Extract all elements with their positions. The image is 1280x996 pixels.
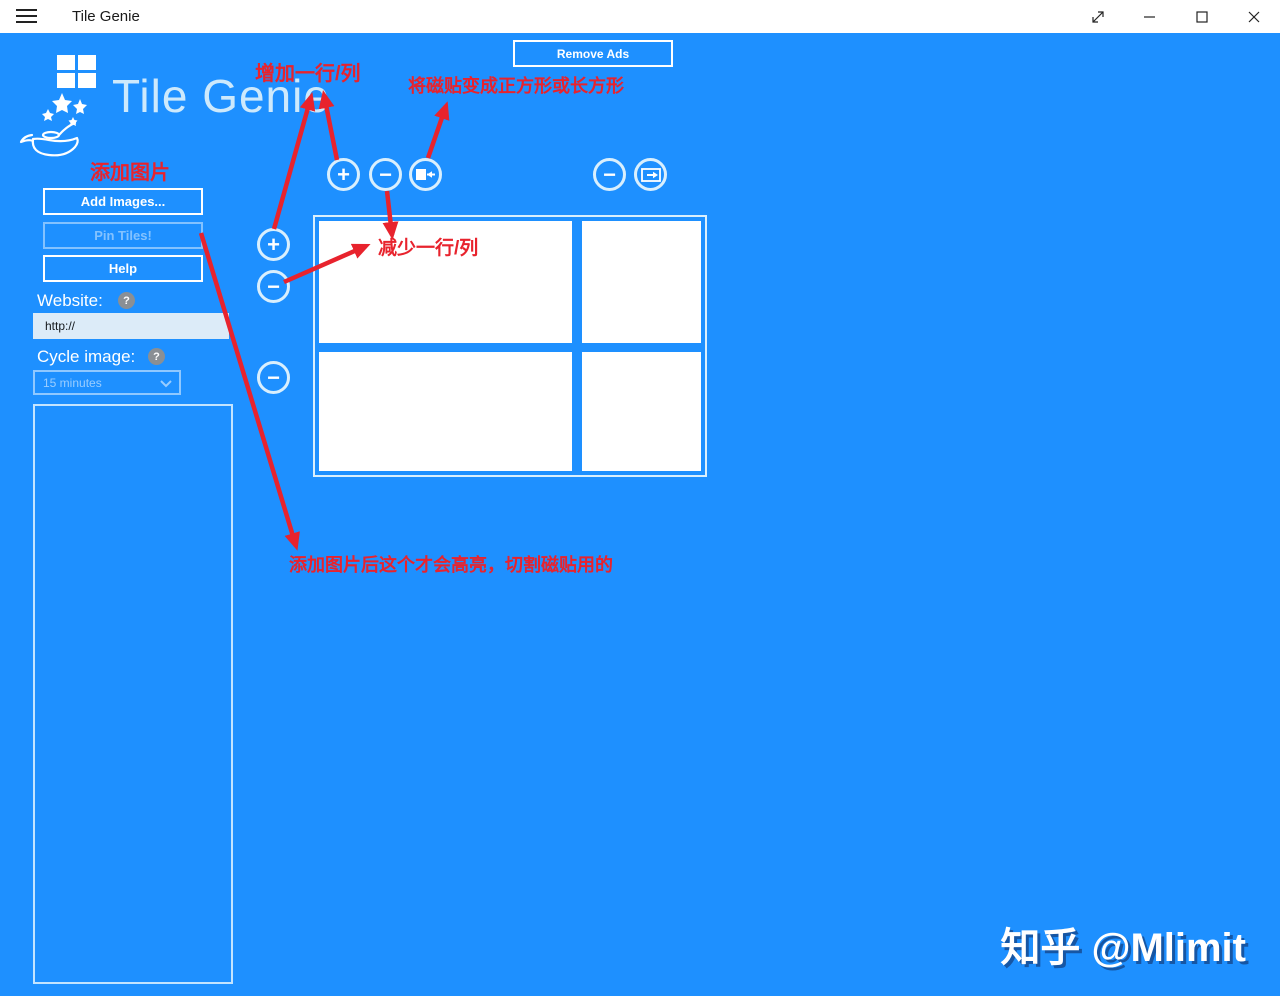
annotation-add-images: 添加图片 (90, 156, 170, 185)
remove-row-button[interactable]: − (257, 270, 290, 303)
add-column-button[interactable]: + (327, 158, 360, 191)
cycle-help-icon[interactable]: ? (148, 348, 165, 365)
website-label: Website: (37, 291, 103, 311)
image-list-panel (33, 404, 233, 984)
tile-preview-grid (313, 215, 707, 477)
maximize-icon[interactable] (1176, 0, 1228, 33)
cycle-image-label: Cycle image: (37, 347, 135, 367)
annotation-pin-note: 添加图片后这个才会高亮，切割磁贴用的 (289, 551, 613, 577)
annotation-remove-row-col: 减少一行/列 (378, 233, 478, 260)
chevron-down-icon (160, 380, 172, 388)
square-arrow-icon (416, 168, 435, 181)
remove-bottom-row-button[interactable]: − (257, 361, 290, 394)
tile-cell[interactable] (582, 352, 701, 471)
minimize-icon[interactable] (1124, 0, 1176, 33)
cycle-interval-value: 15 minutes (43, 376, 102, 390)
make-square-tile-button[interactable] (409, 158, 442, 191)
wide-tile-arrow-icon (641, 168, 661, 182)
make-wide-tile-button[interactable] (634, 158, 667, 191)
tile-cell[interactable] (319, 352, 572, 471)
fullscreen-icon[interactable] (1072, 0, 1124, 33)
add-row-button[interactable]: + (257, 228, 290, 261)
website-help-icon[interactable]: ? (118, 292, 135, 309)
title-bar: Tile Genie (0, 0, 1280, 33)
hamburger-menu-icon[interactable] (16, 9, 40, 25)
add-images-button[interactable]: Add Images... (43, 188, 203, 215)
close-icon[interactable] (1228, 0, 1280, 33)
remove-ads-button[interactable]: Remove Ads (513, 40, 673, 67)
annotation-add-row-col: 增加一行/列 (255, 57, 361, 86)
website-input[interactable] (33, 313, 229, 339)
zhihu-watermark: 知乎 @Mlimit (1000, 915, 1246, 973)
annotation-make-square: 将磁贴变成正方形或长方形 (408, 72, 624, 98)
cycle-interval-select[interactable]: 15 minutes (33, 370, 181, 395)
pin-tiles-button[interactable]: Pin Tiles! (43, 222, 203, 249)
app-surface: Tile Genie Remove Ads Add Images... Pin … (0, 33, 1280, 996)
tile-cell[interactable] (582, 221, 701, 343)
window-controls (1072, 0, 1280, 33)
genie-lamp-logo-icon (18, 51, 118, 161)
remove-right-column-button[interactable]: − (593, 158, 626, 191)
help-button[interactable]: Help (43, 255, 203, 282)
remove-column-button[interactable]: − (369, 158, 402, 191)
window-title: Tile Genie (72, 8, 140, 25)
